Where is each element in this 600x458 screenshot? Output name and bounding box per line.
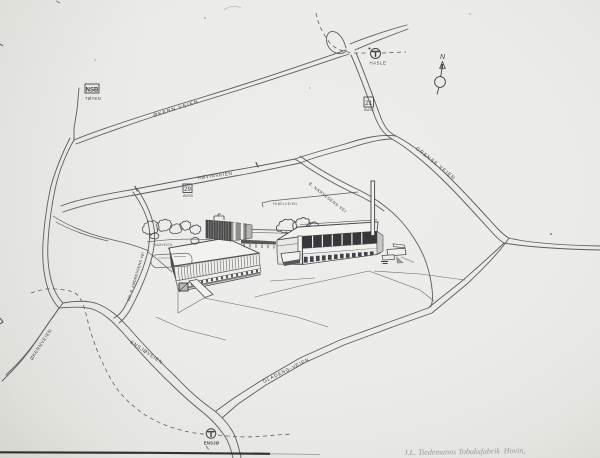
- svg-text:TØYEN: TØYEN: [85, 96, 101, 101]
- svg-text:DAMVEIEN: DAMVEIEN: [153, 243, 172, 247]
- svg-text:29: 29: [184, 187, 191, 193]
- svg-text:BUSS: BUSS: [183, 194, 193, 198]
- svg-text:BUSS: BUSS: [364, 108, 374, 112]
- svg-text:NSB: NSB: [86, 88, 99, 94]
- svg-text:ENSJØ: ENSJØ: [204, 441, 220, 446]
- svg-text:21: 21: [365, 100, 373, 107]
- svg-text:FABELVEIEN: FABELVEIEN: [273, 202, 298, 206]
- svg-text:HASLE: HASLE: [370, 61, 387, 66]
